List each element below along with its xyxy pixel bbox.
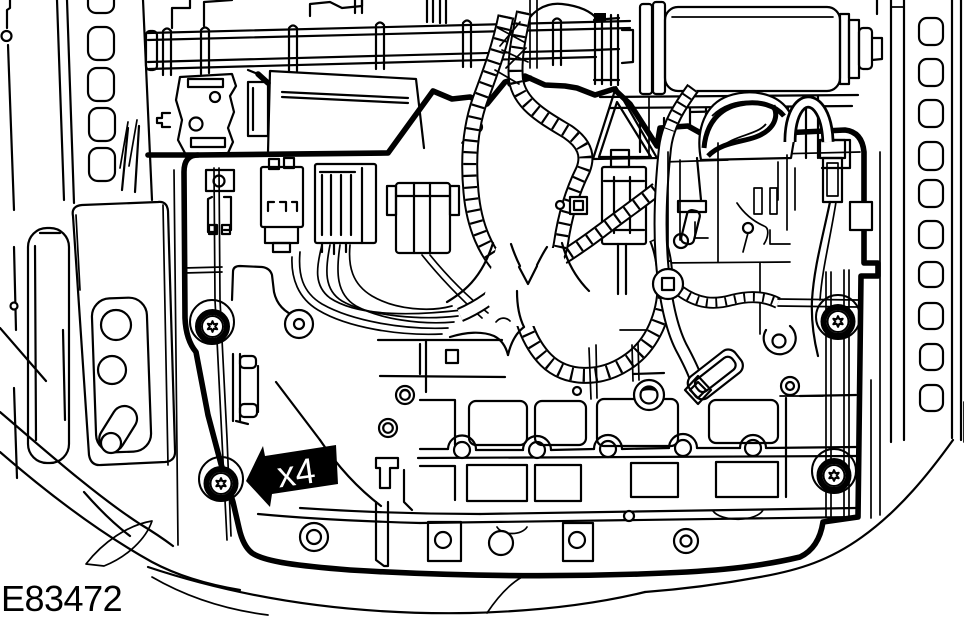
svg-text:E83472: E83472 xyxy=(1,578,122,619)
svg-text:x4: x4 xyxy=(274,450,317,496)
